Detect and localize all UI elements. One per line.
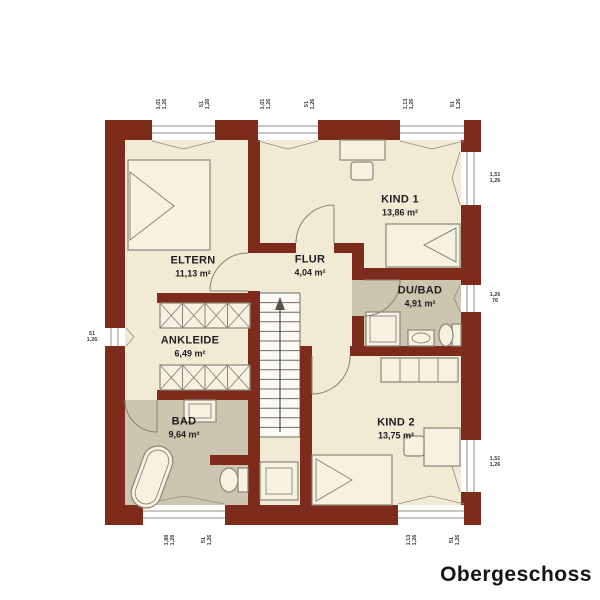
room-label-dubad: DU/BAD 4,91 m² (398, 285, 443, 310)
room-name: FLUR (294, 254, 325, 268)
window-dimension: 1,26 76 (490, 292, 501, 304)
window-dimension: 51 1,26 (87, 331, 98, 343)
kind1-chair (351, 162, 373, 180)
room-area: 9,64 m² (168, 429, 199, 440)
dubad-toilet (439, 324, 461, 346)
window-dimension: 1,51 1,26 (490, 456, 501, 468)
window-dimension: 1,88 1,26 (164, 535, 176, 546)
window-dimension: 51 1,26 (304, 99, 316, 110)
room-area: 13,86 m² (381, 207, 419, 218)
room-area: 4,04 m² (294, 267, 325, 278)
room-label-eltern: ELTERN 11,13 m² (171, 255, 216, 280)
room-label-bad: BAD 9,64 m² (168, 416, 199, 441)
room-area: 13,75 m² (377, 430, 415, 441)
room-area: 11,13 m² (171, 268, 216, 279)
room-name: KIND 2 (377, 417, 415, 431)
kind2-bed (312, 455, 392, 505)
window-dimension: 1,51 1,26 (490, 172, 501, 184)
window-dimension: 51 1,26 (199, 99, 211, 110)
ankleide-wardrobe-bottom (160, 365, 250, 390)
room-label-ankleide: ANKLEIDE 6,49 m² (161, 335, 220, 360)
dubad-sink (408, 330, 434, 346)
dubad-shower (366, 312, 400, 346)
kind2-closets (381, 358, 458, 382)
room-label-flur: FLUR 4,04 m² (294, 254, 325, 279)
room-area: 6,49 m² (161, 348, 220, 359)
window-dimension: 1,13 1,26 (406, 535, 418, 546)
kind1-bed (386, 224, 460, 267)
bad-toilet (220, 468, 248, 492)
window-dimension: 1,01 1,26 (260, 99, 272, 110)
room-name: KIND 1 (381, 194, 419, 208)
room-name: BAD (168, 416, 199, 430)
room-label-kind2: KIND 2 13,75 m² (377, 417, 415, 442)
floorplan-canvas: ELTERN 11,13 m² KIND 1 13,86 m² FLUR 4,0… (0, 0, 600, 600)
window-dimension: 51 1,26 (450, 99, 462, 110)
window-dimension: 51 1,26 (201, 535, 213, 546)
window-dimension: 51 1,26 (449, 535, 461, 546)
floor-title: Obergeschoss (440, 563, 592, 587)
floorplan-drawing (0, 0, 600, 600)
window-dimension: 1,01 1,26 (156, 99, 168, 110)
window-dimension: 1,13 1,26 (403, 99, 415, 110)
eltern-bed (128, 160, 210, 250)
room-name: DU/BAD (398, 285, 443, 299)
room-name: ANKLEIDE (161, 335, 220, 349)
room-label-kind1: KIND 1 13,86 m² (381, 194, 419, 219)
shaft (260, 462, 298, 500)
room-name: ELTERN (171, 255, 216, 269)
room-area: 4,91 m² (398, 298, 443, 309)
ankleide-wardrobe-top (160, 303, 250, 328)
